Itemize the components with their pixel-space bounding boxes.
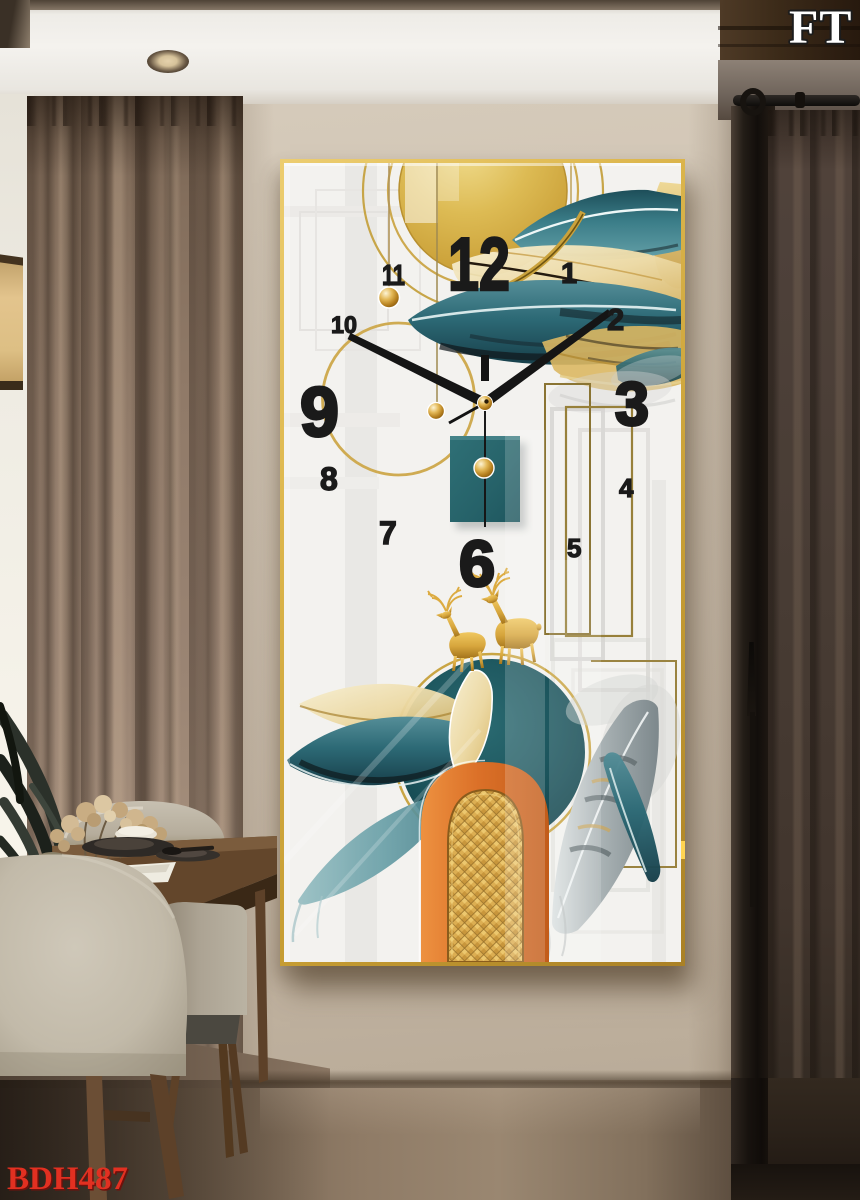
svg-text:5: 5	[567, 533, 581, 563]
svg-text:2: 2	[607, 302, 624, 337]
svg-text:1: 1	[561, 258, 577, 290]
svg-text:10: 10	[331, 312, 357, 339]
svg-text:3: 3	[615, 370, 649, 438]
svg-text:12: 12	[448, 222, 510, 306]
svg-text:11: 11	[382, 260, 405, 292]
svg-text:6: 6	[459, 527, 495, 600]
svg-text:4: 4	[619, 473, 634, 503]
svg-text:9: 9	[300, 373, 339, 451]
svg-text:7: 7	[379, 515, 397, 551]
svg-text:8: 8	[320, 461, 338, 497]
